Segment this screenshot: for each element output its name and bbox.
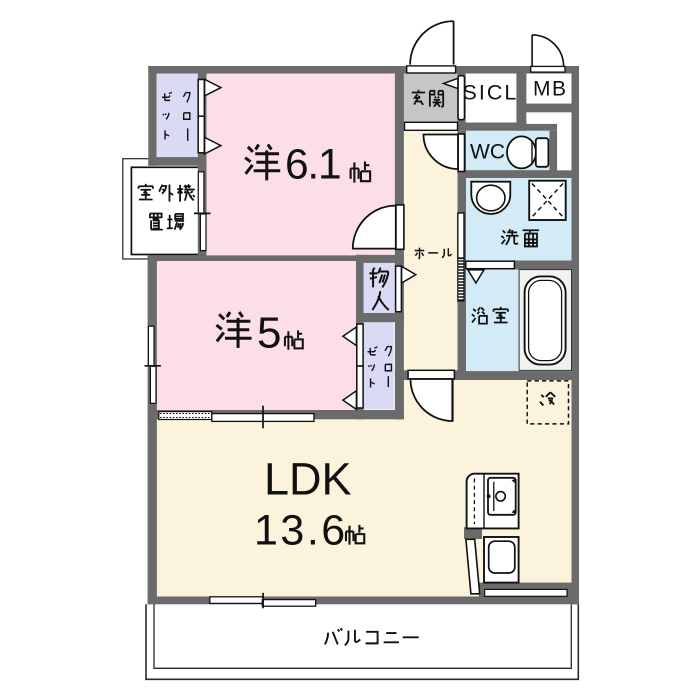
- svg-text:13.6: 13.6: [254, 507, 348, 555]
- svg-text:MB: MB: [533, 78, 568, 101]
- svg-text:LDK: LDK: [264, 453, 352, 504]
- svg-text:WC: WC: [470, 141, 505, 164]
- svg-text:SICL: SICL: [463, 80, 519, 104]
- svg-text:6.1: 6.1: [285, 142, 340, 189]
- svg-text:5: 5: [257, 308, 281, 357]
